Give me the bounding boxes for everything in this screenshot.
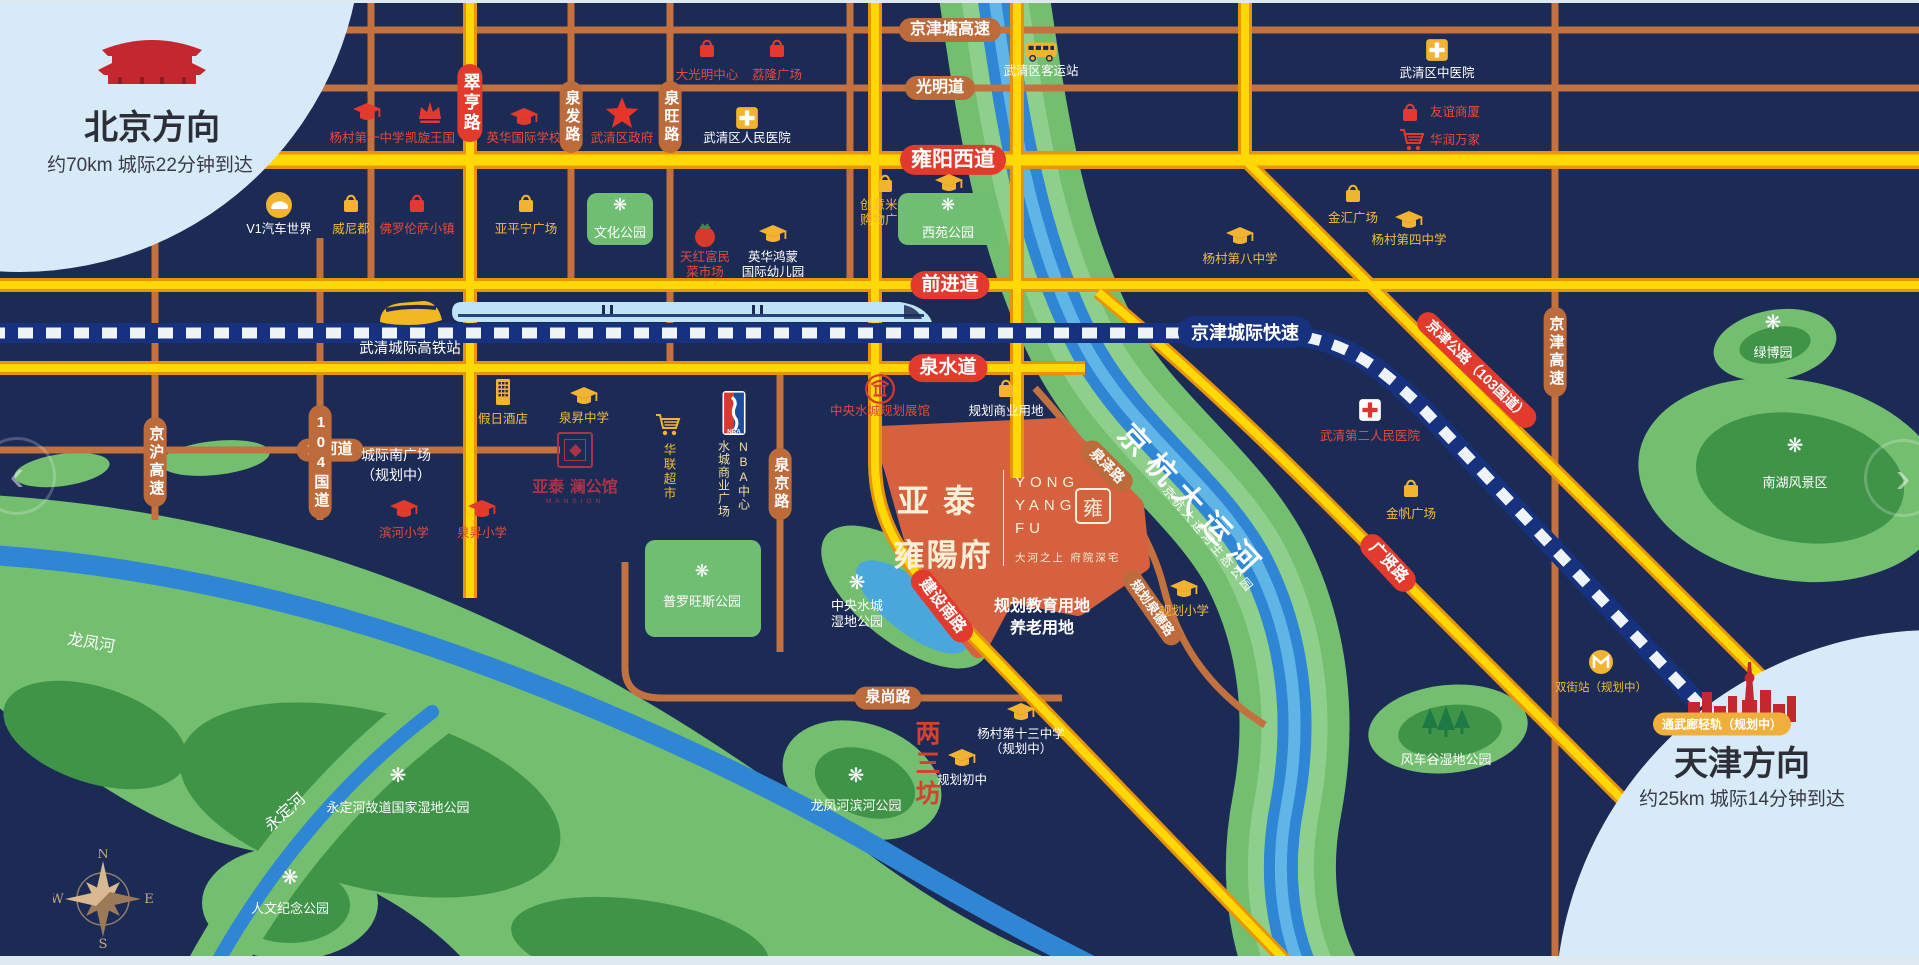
poi-label: 水城商业广场 bbox=[716, 440, 733, 518]
top-edge-strip bbox=[0, 0, 1919, 3]
park-label: 人文纪念公园 bbox=[251, 901, 329, 917]
poi-label: 亚平宁广场 bbox=[495, 222, 558, 237]
poi-label: 武清区中医院 bbox=[1399, 66, 1474, 81]
landmark-logo-icon bbox=[557, 432, 593, 468]
poi-label: 规划小学 bbox=[1159, 604, 1209, 619]
park-label: 西苑公园 bbox=[922, 225, 974, 241]
poi-label: 金帆广场 bbox=[1386, 507, 1436, 522]
poi-label: 英华国际学校 bbox=[486, 131, 561, 146]
road-badge: 泉尚路 bbox=[854, 687, 921, 710]
poi-label: 泉昇小学 bbox=[457, 526, 507, 541]
svg-text:NBA: NBA bbox=[727, 428, 741, 435]
property-en3: FU bbox=[1015, 520, 1079, 537]
poi-label: 杨村第八中学 bbox=[1202, 252, 1277, 267]
poi-label: 泉昇中学 bbox=[559, 411, 609, 426]
park-label: 风车谷湿地公园 bbox=[1400, 752, 1491, 768]
beijing-subtitle: 约70km 城际22分钟到达 bbox=[47, 150, 253, 177]
bag-icon bbox=[405, 191, 429, 215]
cart-icon bbox=[654, 412, 682, 438]
property-divider bbox=[1003, 470, 1004, 566]
liangsanfang-label: 两三坊 bbox=[908, 720, 944, 810]
road-badge: 雍阳西道 bbox=[900, 145, 1006, 175]
compass-n: N bbox=[97, 849, 108, 862]
road-badge: 104国道 bbox=[309, 405, 332, 519]
road-badge: 京津塘高速 bbox=[899, 18, 1001, 42]
cap-icon bbox=[509, 106, 539, 130]
bag-icon bbox=[514, 191, 538, 215]
poi-label: 假日酒店 bbox=[478, 412, 528, 427]
bag-icon bbox=[994, 376, 1018, 400]
tomato-icon bbox=[692, 222, 718, 248]
compass-s: S bbox=[99, 937, 108, 949]
landmark-yatailan: 亚泰 澜公馆 MANSION bbox=[515, 432, 635, 505]
cap-icon bbox=[1006, 701, 1036, 725]
poi-label: 双街站（规划中） bbox=[1555, 681, 1647, 696]
cap-icon bbox=[389, 498, 419, 522]
poi-label: 杨村第四中学 bbox=[1371, 233, 1446, 248]
park-label: 普罗旺斯公园 bbox=[663, 594, 741, 610]
poi-label: NBA中心 bbox=[736, 440, 753, 518]
beijing-temple-icon bbox=[88, 28, 216, 86]
chevron-right-icon: › bbox=[1896, 453, 1911, 503]
bag-icon bbox=[339, 191, 363, 215]
nba-icon: NBA bbox=[723, 391, 746, 435]
bag-icon bbox=[1341, 181, 1365, 205]
flower-icon: ❋ bbox=[613, 197, 627, 214]
crown-icon bbox=[415, 99, 445, 125]
flower-icon: ❋ bbox=[695, 563, 709, 580]
flower-icon: ❋ bbox=[848, 766, 865, 786]
train-crh bbox=[380, 301, 442, 325]
road-badge: 光明道 bbox=[905, 76, 975, 100]
metro-icon bbox=[1587, 648, 1615, 676]
bag-icon bbox=[1398, 100, 1422, 124]
cap-icon bbox=[352, 101, 382, 125]
park-label: 龙凤河滨河公园 bbox=[810, 798, 901, 814]
star-icon bbox=[604, 96, 640, 130]
road-badge: 京沪高速 bbox=[144, 417, 167, 507]
cap-icon bbox=[1169, 578, 1199, 602]
poi-label: 佛罗伦萨小镇 bbox=[379, 222, 454, 237]
road-badge: 翠亨路 bbox=[457, 64, 482, 142]
poi-label: 天红富民菜市场 bbox=[680, 250, 730, 280]
property-name-cn2: 雍陽府 bbox=[893, 530, 993, 575]
bottom-edge-strip bbox=[0, 956, 1919, 965]
flower-icon: ❋ bbox=[1787, 436, 1804, 456]
cap-icon bbox=[467, 498, 497, 522]
cap-icon bbox=[1394, 209, 1424, 233]
poi-label: 武清区客运站 bbox=[1003, 64, 1078, 79]
station-label: 武清城际高铁站 bbox=[359, 337, 461, 358]
cap-icon bbox=[569, 385, 599, 409]
flower-icon: ❋ bbox=[1765, 313, 1782, 333]
flower-icon: ❋ bbox=[390, 766, 407, 786]
bag-icon bbox=[765, 36, 789, 60]
compass-w: W bbox=[53, 892, 64, 907]
pavilion-icon bbox=[864, 373, 896, 405]
rail-line-badge: 京津城际快速 bbox=[1178, 316, 1312, 348]
poi-label: 凯旋王国 bbox=[405, 131, 455, 146]
park-label: 南湖风景区 bbox=[1762, 475, 1827, 491]
flower-icon: ❋ bbox=[849, 573, 866, 593]
poi-label: 滨河小学 bbox=[379, 526, 429, 541]
road-badge: 泉京路 bbox=[769, 448, 792, 520]
cap-icon bbox=[1225, 225, 1255, 249]
road-badge: 泉水道 bbox=[908, 354, 987, 382]
poi-label: 规划初中 bbox=[937, 773, 987, 788]
train-intercity bbox=[452, 302, 932, 322]
poi-label: 大光明中心 bbox=[676, 68, 739, 83]
park-label: 永定河故道国家湿地公园 bbox=[326, 800, 469, 816]
road-badge: 泉旺路 bbox=[659, 81, 682, 153]
property-en2: YANG bbox=[1015, 497, 1079, 514]
cap-icon bbox=[758, 223, 788, 247]
bag-icon bbox=[695, 36, 719, 60]
chevron-left-icon: ‹ bbox=[10, 451, 25, 501]
poi-label: 规划商业用地 bbox=[968, 404, 1043, 419]
cross-icon bbox=[734, 105, 760, 131]
light-rail-badge: 通武廊轻轨（规划中） bbox=[1653, 713, 1791, 736]
building-icon bbox=[492, 376, 514, 408]
property-seal-icon: 雍 bbox=[1075, 488, 1111, 524]
road-badge: 前进道 bbox=[910, 271, 989, 299]
road-badge: 泉发路 bbox=[560, 81, 583, 153]
poi-label: 华联超市 bbox=[661, 443, 676, 501]
park-area bbox=[645, 540, 761, 637]
tianjin-subtitle: 约25km 城际14分钟到达 bbox=[1639, 784, 1845, 811]
poi-label: 武清区人民医院 bbox=[703, 131, 791, 146]
poi-label: 武清第二人民医院 bbox=[1320, 429, 1420, 444]
property-tagline: 大河之上 府院深宅 bbox=[1015, 550, 1120, 565]
poi-label: 杨村第一中学 bbox=[329, 131, 404, 146]
poi-label: 友谊商厦 bbox=[1430, 105, 1480, 120]
poi-label: 金汇广场 bbox=[1328, 211, 1378, 226]
flower-icon: ❋ bbox=[941, 197, 955, 214]
crossw-icon bbox=[1357, 397, 1383, 423]
poi-label: 华润万家 bbox=[1430, 133, 1480, 148]
poi-label: 威尼都 bbox=[332, 222, 370, 237]
landmark-name: 亚泰 澜公馆 bbox=[515, 473, 635, 497]
park-label: 绿博园 bbox=[1753, 345, 1792, 361]
property-en1: YONG bbox=[1015, 474, 1079, 491]
poi-label-columns: 水城商业广场NBA中心 bbox=[716, 440, 753, 518]
tianjin-title: 天津方向 bbox=[1674, 736, 1810, 785]
bag-icon bbox=[873, 171, 897, 195]
poi-label: 杨村第十三中学（规划中） bbox=[977, 727, 1065, 757]
carCircle-icon bbox=[264, 190, 294, 220]
compass-e: E bbox=[144, 892, 153, 907]
area-label: 城际南广场（规划中） bbox=[361, 446, 431, 485]
poi-label: V1汽车世界 bbox=[246, 222, 311, 237]
trees-icon bbox=[1420, 706, 1472, 738]
map-canvas: 北京方向 约70km 城际22分钟到达 天津方向 约25km 城际14分钟到达 … bbox=[0, 0, 1919, 965]
bus-icon bbox=[1023, 39, 1059, 64]
cart-icon bbox=[1398, 127, 1426, 153]
property-name-cn1: 亚泰 bbox=[893, 476, 993, 522]
cross-icon bbox=[1424, 37, 1450, 63]
poi-label: 武清区政府 bbox=[591, 131, 654, 146]
road-badge: 京津高速 bbox=[1544, 307, 1567, 397]
park-label: 中央水城湿地公园 bbox=[831, 598, 883, 630]
poi-label: 英华鸿蒙国际幼儿园 bbox=[742, 250, 805, 280]
poi-label: 中央水城规划展馆 bbox=[830, 404, 930, 419]
flower-icon: ❋ bbox=[282, 868, 299, 888]
compass-icon: N E S W bbox=[53, 849, 153, 949]
area-label: 规划教育用地养老用地 bbox=[994, 596, 1090, 641]
bag-icon bbox=[1399, 476, 1423, 500]
beijing-title: 北京方向 bbox=[84, 100, 220, 149]
cap-icon bbox=[947, 747, 977, 771]
landmark-sub: MANSION bbox=[515, 498, 635, 505]
poi-label: 荔隆广场 bbox=[752, 68, 802, 83]
park-label: 文化公园 bbox=[594, 225, 646, 241]
